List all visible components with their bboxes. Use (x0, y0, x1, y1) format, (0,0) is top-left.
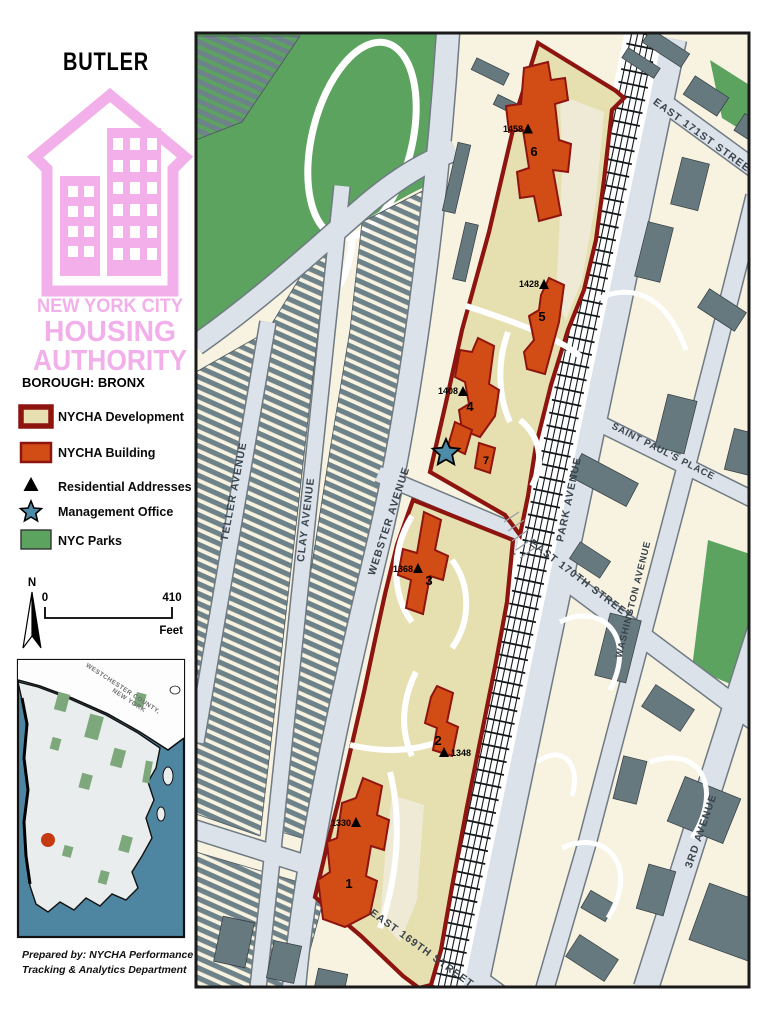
scale-unit: Feet (159, 625, 183, 637)
building-1-number: 1 (345, 876, 352, 891)
building-5-address: 1428 (519, 279, 539, 289)
legend-residential-label: Residential Addresses (58, 480, 192, 494)
legend: NYCHA Development NYCHA Building Residen… (21, 407, 192, 549)
legend-building-label: NYCHA Building (58, 446, 155, 460)
building-5-number: 5 (538, 309, 545, 324)
credits-line2: Tracking & Analytics Department (22, 964, 187, 976)
org-name-line3: AUTHORITY (33, 345, 187, 377)
inset-map: WESTCHESTER COUNTY, NEW YORK (18, 660, 184, 937)
building-3-address: 1368 (393, 564, 413, 574)
north-label: N (28, 577, 36, 589)
building-1-address: 1330 (331, 818, 351, 828)
legend-office-star-icon (21, 501, 42, 521)
building-4-number: 4 (466, 399, 474, 414)
legend-parks-label: NYC Parks (58, 534, 122, 548)
scale-start: 0 (42, 592, 48, 604)
borough-label: BOROUGH: BRONX (22, 375, 145, 390)
main-map: 1 2 3 4 5 6 7 1330 1348 1368 1408 1428 1… (190, 29, 770, 1024)
scale-end: 410 (162, 592, 181, 604)
legend-development-swatch (21, 407, 51, 426)
legend-parks-swatch (21, 530, 51, 549)
building-4-address: 1408 (438, 386, 458, 396)
legend-building-swatch (21, 443, 51, 462)
building-2-number: 2 (434, 733, 441, 748)
building-6-number: 6 (530, 144, 537, 159)
legend-residential-triangle-icon (24, 477, 39, 491)
building-6-address: 1458 (503, 124, 523, 134)
org-name-line2: HOUSING (44, 316, 176, 348)
north-arrow: N (23, 577, 41, 648)
nycha-map-page: BUTLER NEW YORK CITY HOUSING AUTHORITY B… (0, 0, 770, 1024)
org-name-line1: NEW YORK CITY (37, 296, 183, 317)
building-3-number: 3 (425, 573, 432, 588)
scale-bar: 0 410 Feet (42, 592, 183, 637)
nycha-logo-icon (35, 95, 185, 291)
legend-development-label: NYCHA Development (58, 410, 185, 424)
building-2-address: 1348 (451, 748, 471, 758)
legend-office-label: Management Office (58, 505, 173, 519)
page-title: BUTLER (63, 48, 149, 76)
building-7-number: 7 (483, 455, 489, 467)
credits-line1: Prepared by: NYCHA Performance (22, 949, 193, 961)
inset-development-dot (41, 833, 55, 847)
